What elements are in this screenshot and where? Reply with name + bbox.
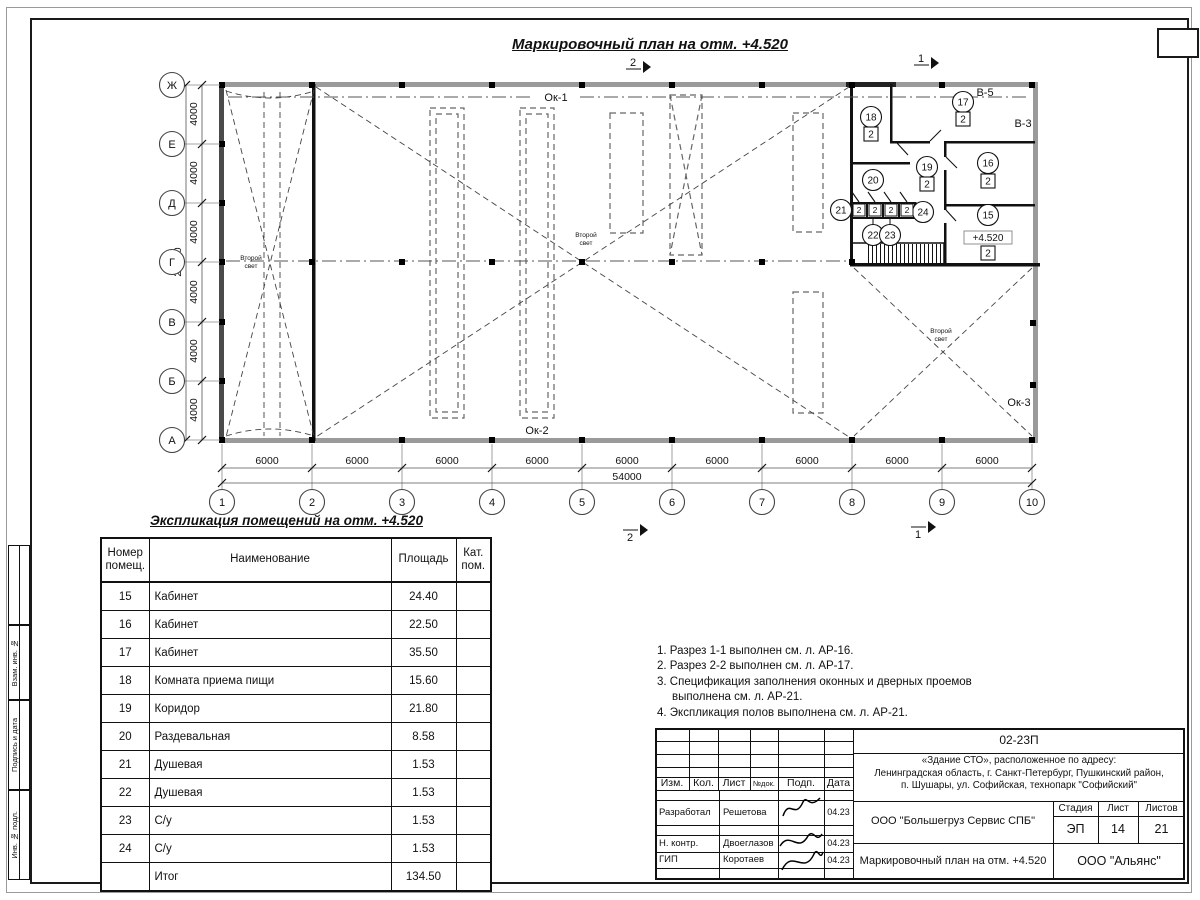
side-stamp-cell-podpis: Подпись и дата xyxy=(8,700,30,790)
table-row: 18Комната приема пищи15.60 xyxy=(101,667,491,695)
room-marker-24: 24 xyxy=(913,202,934,223)
svg-text:22: 22 xyxy=(867,231,879,242)
svg-text:24: 24 xyxy=(917,208,929,219)
svg-text:Ж: Ж xyxy=(167,80,177,92)
svg-text:2: 2 xyxy=(960,115,966,126)
table-row: 16Кабинет22.50 xyxy=(101,611,491,639)
stage-header: Стадия xyxy=(1053,801,1098,816)
svg-text:4000: 4000 xyxy=(188,339,200,363)
second-light-text: свет xyxy=(579,240,592,247)
sheet-header: Лист xyxy=(1098,801,1138,816)
svg-text:4: 4 xyxy=(489,497,495,509)
col-header-num: Номер помещ. xyxy=(101,538,149,582)
elevation-mark: +4.520 xyxy=(973,233,1004,244)
tb-role-2: ГИП xyxy=(655,852,723,868)
second-light-text: Второй xyxy=(240,254,262,262)
svg-text:23: 23 xyxy=(884,231,896,242)
staircase xyxy=(852,243,944,264)
svg-text:6000: 6000 xyxy=(795,455,819,467)
svg-text:Д: Д xyxy=(168,198,176,210)
drawing-sheet: Маркировочный план на отм. +4.520 xyxy=(0,0,1200,900)
room-markers: 17 2 18 2 16 2 19 2 xyxy=(831,92,1013,261)
sheets-value: 21 xyxy=(1138,816,1185,843)
svg-text:21: 21 xyxy=(835,206,847,217)
address-line: «Здание СТО», расположенное по адресу: xyxy=(855,755,1183,768)
second-light-text: Второй xyxy=(575,231,597,239)
table-row: 21Душевая1.53 xyxy=(101,751,491,779)
svg-text:6000: 6000 xyxy=(975,455,999,467)
svg-text:1: 1 xyxy=(915,529,921,541)
note-item: 2. Разрез 2-2 выполнен см. л. АР-17. xyxy=(657,659,992,674)
total-label: Итог xyxy=(149,863,391,892)
table-row: 22Душевая1.53 xyxy=(101,779,491,807)
side-stamp-label: Подпись и дата xyxy=(10,718,19,772)
table-row: 19Коридор21.80 xyxy=(101,695,491,723)
tb-header-list: Лист xyxy=(718,777,750,790)
tb-header-data: Дата xyxy=(824,777,853,790)
tb-header-kol: Кол. xyxy=(689,777,718,790)
tb-date-0: 04.23 xyxy=(824,800,853,825)
note-item: 4. Экспликация полов выполнена см. л. АР… xyxy=(657,706,992,721)
side-stamp-cell-vzam: Взам. инв. № xyxy=(8,625,30,700)
v5-label: В-5 xyxy=(976,87,993,99)
svg-text:6000: 6000 xyxy=(705,455,729,467)
svg-text:Г: Г xyxy=(169,257,175,269)
svg-text:2: 2 xyxy=(985,177,991,188)
svg-text:5: 5 xyxy=(579,497,585,509)
svg-text:6: 6 xyxy=(669,497,675,509)
svg-text:6000: 6000 xyxy=(345,455,369,467)
signature-1 xyxy=(778,828,824,878)
drawing-name: Маркировочный план на отм. +4.520 xyxy=(853,843,1053,880)
side-stamp-label: Взам. инв. № xyxy=(10,639,19,686)
side-stamp-cell-inv: Инв. № подл. xyxy=(8,790,30,880)
note-item: 1. Разрез 1-1 выполнен см. л. АР-16. xyxy=(657,644,992,659)
room-marker-23: 23 xyxy=(880,219,901,246)
section-mark-1-bottom: 1 xyxy=(911,521,936,541)
room-marker-18: 18 2 xyxy=(861,107,882,142)
svg-text:4000: 4000 xyxy=(188,220,200,244)
svg-text:2: 2 xyxy=(985,249,991,260)
axis-letter-bubbles: Ж Е Д Г В Б А xyxy=(160,73,185,453)
svg-text:В: В xyxy=(168,317,175,329)
floor-plan-drawing: Ок-1 Ок-2 Ок-3 В-5 В-3 Второй свет Второ… xyxy=(0,0,1200,560)
project-address: «Здание СТО», расположенное по адресу: Л… xyxy=(855,755,1183,799)
svg-text:6000: 6000 xyxy=(525,455,549,467)
left-dimensions: 4000 4000 4000 4000 4000 4000 24000 Ж Е … xyxy=(160,73,221,453)
organization-name: ООО "Альянс" xyxy=(1053,843,1185,880)
svg-text:17: 17 xyxy=(957,98,969,109)
doc-number: 02-23П xyxy=(853,728,1185,753)
ok1-label: Ок-1 xyxy=(544,92,567,104)
tb-header-ndok: №док. xyxy=(750,777,778,790)
ok2-label: Ок-2 xyxy=(525,425,548,437)
table-row: 20Раздевальная8.58 xyxy=(101,723,491,751)
second-light-text: Второй xyxy=(930,327,952,335)
svg-text:4000: 4000 xyxy=(188,102,200,126)
svg-text:6000: 6000 xyxy=(615,455,639,467)
explication-title: Экспликация помещений на отм. +4.520 xyxy=(150,513,423,528)
table-row: 17Кабинет35.50 xyxy=(101,639,491,667)
address-line: п. Шушары, ул. Софийская, технопарк "Соф… xyxy=(855,780,1183,793)
section-mark-2-bottom: 2 xyxy=(623,524,648,544)
tb-role-0: Разработал xyxy=(655,800,723,825)
svg-text:6000: 6000 xyxy=(435,455,459,467)
tb-date-2: 04.23 xyxy=(824,852,853,868)
bottom-dimensions: 6000 6000 6000 6000 6000 6000 6000 6000 … xyxy=(210,444,1045,515)
axis-number-bubbles: 1 2 3 4 5 6 7 8 9 10 xyxy=(210,490,1045,515)
tb-name-0: Решетова xyxy=(719,800,782,825)
note-item: 3. Спецификация заполнения оконных и две… xyxy=(657,675,992,706)
table-row: 15Кабинет24.40 xyxy=(101,582,491,611)
svg-text:19: 19 xyxy=(921,163,933,174)
svg-text:Е: Е xyxy=(168,139,175,151)
svg-text:9: 9 xyxy=(939,497,945,509)
svg-text:18: 18 xyxy=(865,113,877,124)
tb-role-1: Н. контр. xyxy=(655,835,723,852)
svg-text:А: А xyxy=(168,435,176,447)
room-marker-21: 21 xyxy=(831,200,852,221)
svg-text:16: 16 xyxy=(982,159,994,170)
notes-block: 1. Разрез 1-1 выполнен см. л. АР-16. 2. … xyxy=(657,644,992,721)
ok3-label: Ок-3 xyxy=(1007,397,1030,409)
svg-text:4000: 4000 xyxy=(188,161,200,185)
svg-text:2: 2 xyxy=(924,180,930,191)
svg-text:15: 15 xyxy=(982,211,994,222)
stage-value: ЭП xyxy=(1053,816,1098,843)
tb-name-2: Коротаев xyxy=(719,852,782,868)
svg-text:2: 2 xyxy=(905,205,910,215)
svg-text:2: 2 xyxy=(309,497,315,509)
signature-0 xyxy=(779,792,823,824)
explication-table: Номер помещ. Наименование Площадь Кат. п… xyxy=(100,537,492,892)
side-stamp-cell-empty xyxy=(8,545,30,625)
window-labels: Ок-1 Ок-2 Ок-3 В-5 В-3 xyxy=(525,87,1031,437)
v3-label: В-3 xyxy=(1014,118,1031,130)
second-light-text: свет xyxy=(244,263,257,270)
total-width-dim: 54000 xyxy=(612,471,641,483)
dashed-roof-outlines xyxy=(430,95,823,418)
room-marker-15: 15 +4.520 2 xyxy=(964,205,1012,261)
svg-text:2: 2 xyxy=(889,205,894,215)
side-stamp-label: Инв. № подл. xyxy=(10,811,19,859)
col-header-cat: Кат. пом. xyxy=(456,538,491,582)
section-mark-2-top: 2 xyxy=(626,57,651,73)
svg-text:3: 3 xyxy=(399,497,405,509)
total-value: 134.50 xyxy=(391,863,456,892)
section-mark-1-top: 1 xyxy=(914,53,939,69)
svg-text:2: 2 xyxy=(627,532,633,544)
tb-date-1: 04.23 xyxy=(824,835,853,852)
second-light-labels: Второй свет Второй свет Второй свет xyxy=(240,231,952,343)
table-row: 24С/у1.53 xyxy=(101,835,491,863)
tb-name-1: Двоеглазов xyxy=(719,835,782,852)
col-header-name: Наименование xyxy=(149,538,391,582)
table-header-row: Номер помещ. Наименование Площадь Кат. п… xyxy=(101,538,491,582)
second-light-text: свет xyxy=(934,336,947,343)
svg-text:6000: 6000 xyxy=(255,455,279,467)
window-band-lines xyxy=(226,97,1030,261)
svg-text:7: 7 xyxy=(759,497,765,509)
svg-text:20: 20 xyxy=(867,176,879,187)
address-line: Ленинградская область, г. Санкт-Петербур… xyxy=(855,768,1183,781)
room-marker-16: 16 2 xyxy=(978,153,999,189)
svg-text:Б: Б xyxy=(168,376,175,388)
svg-text:10: 10 xyxy=(1026,497,1038,509)
svg-text:1: 1 xyxy=(918,53,924,65)
svg-text:2: 2 xyxy=(857,205,862,215)
table-row: 23С/у1.53 xyxy=(101,807,491,835)
sheet-value: 14 xyxy=(1098,816,1138,843)
room-marker-20: 20 xyxy=(863,170,884,191)
svg-text:4000: 4000 xyxy=(188,398,200,422)
svg-text:1: 1 xyxy=(219,497,225,509)
room-marker-19: 19 2 xyxy=(917,157,938,192)
room-marker-17: 17 2 xyxy=(953,92,974,127)
sheets-header: Листов xyxy=(1138,801,1185,816)
title-block: Изм. Кол. Лист №док. Подп. Дата Разработ… xyxy=(655,728,1185,880)
table-total-row: Итог134.50 xyxy=(101,863,491,892)
svg-text:2: 2 xyxy=(630,57,636,69)
company-name: ООО "Большегруз Сервис СПБ" xyxy=(853,801,1053,843)
svg-text:2: 2 xyxy=(873,205,878,215)
svg-text:8: 8 xyxy=(849,497,855,509)
svg-text:2: 2 xyxy=(868,130,874,141)
col-header-area: Площадь xyxy=(391,538,456,582)
tb-header-izm: Изм. xyxy=(655,777,689,790)
tb-header-podp: Подп. xyxy=(778,777,824,790)
svg-text:4000: 4000 xyxy=(188,280,200,304)
svg-text:6000: 6000 xyxy=(885,455,909,467)
